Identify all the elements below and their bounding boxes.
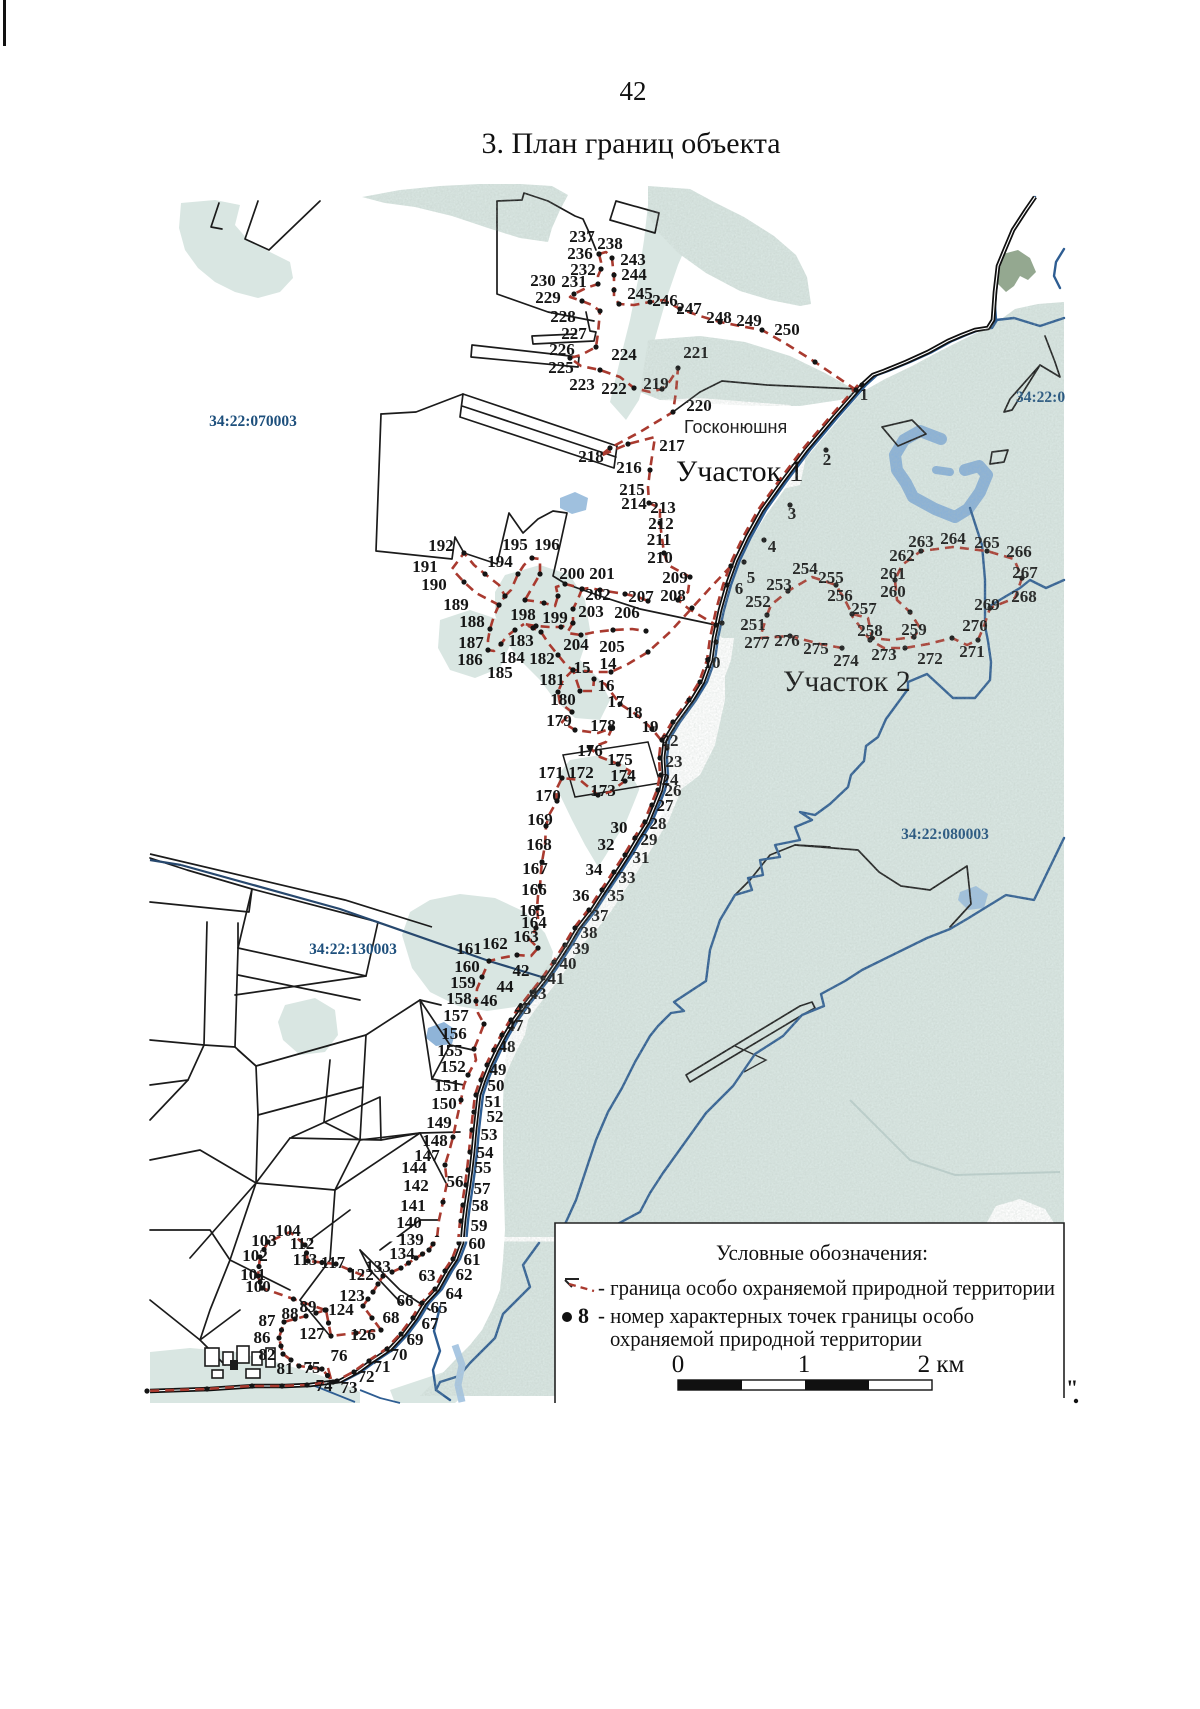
svg-text:0: 0 [672,1351,685,1378]
svg-text:122: 122 [348,1265,374,1284]
svg-text:179: 179 [546,711,572,730]
svg-text:172: 172 [568,763,594,782]
svg-text:202: 202 [585,585,611,604]
svg-text:194: 194 [487,552,513,571]
svg-text:229: 229 [535,288,561,307]
svg-text:Участок 1: Участок 1 [676,455,804,488]
svg-text:204: 204 [563,635,589,654]
svg-text:126: 126 [350,1325,376,1344]
svg-text:246: 246 [652,291,678,310]
svg-text:244: 244 [621,265,647,284]
svg-text:183: 183 [508,631,534,650]
svg-text:150: 150 [431,1094,457,1113]
svg-text:42: 42 [513,961,530,980]
svg-text:104: 104 [275,1221,301,1240]
svg-text:196: 196 [534,535,560,554]
svg-text:226: 226 [549,340,575,359]
svg-text:218: 218 [578,447,604,466]
svg-text:152: 152 [440,1057,466,1076]
svg-text:34:22:070003: 34:22:070003 [209,413,297,430]
svg-text:222: 222 [601,379,627,398]
svg-text:214: 214 [621,494,647,513]
svg-text:198: 198 [510,605,536,624]
svg-text:30: 30 [611,818,628,837]
svg-text:191: 191 [412,557,438,576]
svg-text:134: 134 [389,1244,415,1263]
svg-text:42: 42 [620,76,647,106]
svg-text:176: 176 [577,741,603,760]
svg-text:82: 82 [259,1345,276,1364]
svg-text:192: 192 [428,536,454,555]
svg-text:58: 58 [472,1196,489,1215]
svg-text:1: 1 [798,1351,811,1378]
svg-text:144: 144 [401,1158,427,1177]
svg-text:75: 75 [304,1358,321,1377]
svg-text:188: 188 [459,612,485,631]
svg-text:161: 161 [456,939,482,958]
svg-text:59: 59 [471,1216,488,1235]
svg-text:223: 223 [569,375,595,394]
svg-text:247: 247 [676,299,702,318]
svg-text:224: 224 [611,345,637,364]
svg-text:190: 190 [421,575,447,594]
svg-text:8: 8 [578,1303,589,1328]
svg-text:248: 248 [706,308,732,327]
svg-text:16: 16 [598,676,615,695]
svg-text:34: 34 [586,860,604,879]
svg-text:76: 76 [331,1346,348,1365]
svg-text:72: 72 [358,1367,375,1386]
svg-text:2 км: 2 км [918,1351,965,1378]
svg-text:53: 53 [481,1125,498,1144]
svg-text:36: 36 [573,886,590,905]
svg-text:206: 206 [614,603,640,622]
svg-text:178: 178 [590,716,616,735]
svg-text:124: 124 [328,1300,354,1319]
svg-text:64: 64 [446,1284,464,1303]
svg-text:88: 88 [282,1304,299,1323]
svg-text:182: 182 [529,649,555,668]
svg-text:46: 46 [481,991,498,1010]
svg-text:167: 167 [522,859,548,878]
svg-text:18: 18 [626,703,643,722]
svg-text:100: 100 [245,1277,271,1296]
svg-text:149: 149 [426,1113,452,1132]
svg-text:60: 60 [469,1234,486,1253]
svg-text:203: 203 [578,602,604,621]
svg-text:245: 245 [627,284,653,303]
svg-text:209: 209 [662,568,688,587]
svg-text:32: 32 [598,835,615,854]
svg-text:Госконюшня: Госконюшня [684,417,787,437]
svg-text:14: 14 [600,654,618,673]
svg-text:44: 44 [497,977,515,996]
svg-text:151: 151 [434,1076,460,1095]
svg-text:117: 117 [321,1253,346,1272]
svg-text:217: 217 [659,436,685,455]
svg-text:171: 171 [538,763,564,782]
svg-text:210: 210 [647,548,673,567]
svg-text:238: 238 [597,234,623,253]
svg-text:162: 162 [482,934,508,953]
svg-text:231: 231 [561,272,587,291]
svg-text:170: 170 [535,786,561,805]
svg-text:201: 201 [589,564,615,583]
svg-text:63: 63 [419,1266,436,1285]
svg-text:3. План границ объекта: 3. План границ объекта [481,127,780,160]
svg-text:216: 216 [616,458,642,477]
svg-text:68: 68 [383,1308,400,1327]
svg-text:66: 66 [397,1291,414,1310]
svg-text:74: 74 [316,1376,334,1395]
svg-text:19: 19 [642,717,659,736]
svg-text:163: 163 [513,927,539,946]
svg-text:169: 169 [527,810,553,829]
svg-text:250: 250 [774,320,800,339]
svg-text:15: 15 [574,658,591,677]
svg-text:173: 173 [590,781,616,800]
svg-text:охраняемой природной территори: охраняемой природной территории [610,1326,922,1351]
svg-text:73: 73 [341,1378,358,1397]
svg-text:": " [1066,1375,1078,1400]
svg-text:127: 127 [299,1324,325,1343]
svg-text:57: 57 [474,1179,492,1198]
svg-text:180: 180 [550,690,576,709]
svg-text:166: 166 [521,880,547,899]
svg-text:142: 142 [403,1176,429,1195]
svg-text:81: 81 [277,1359,294,1378]
svg-text:71: 71 [374,1357,391,1376]
svg-text:70: 70 [391,1345,408,1364]
svg-text:- номер характерных точек гран: - номер характерных точек границы особо [598,1303,974,1328]
svg-text:89: 89 [300,1297,317,1316]
svg-text:186: 186 [457,650,483,669]
svg-text:199: 199 [542,608,568,627]
svg-text:102: 102 [242,1246,268,1265]
svg-text:56: 56 [447,1172,464,1191]
svg-text:249: 249 [736,311,762,330]
svg-text:168: 168 [526,835,552,854]
svg-text:184: 184 [499,648,525,667]
svg-text:211: 211 [647,530,672,549]
svg-text:54: 54 [477,1143,495,1162]
svg-text:34:22:130003: 34:22:130003 [309,941,397,958]
svg-text:- граница особо охраняемой при: - граница особо охраняемой природной тер… [598,1275,1055,1300]
svg-text:208: 208 [660,586,686,605]
svg-text:Условные обозначения:: Условные обозначения: [716,1240,928,1265]
svg-text:200: 200 [559,564,585,583]
svg-text:157: 157 [443,1006,469,1025]
svg-text:181: 181 [539,670,565,689]
svg-text:49: 49 [490,1060,507,1079]
